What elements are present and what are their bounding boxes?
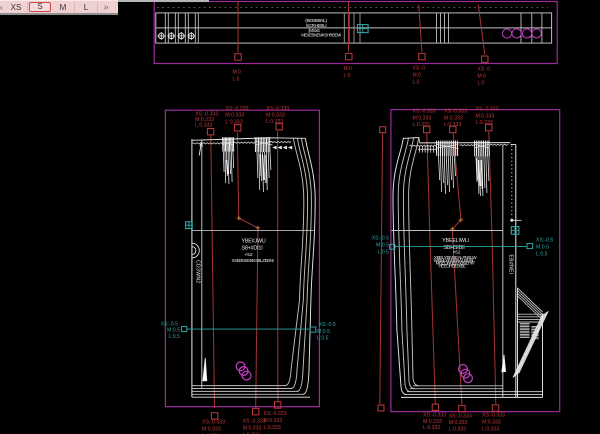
svg-text:XS:-0: XS:-0 (478, 67, 491, 73)
svg-text:M:0.333: M:0.333 (482, 420, 501, 426)
svg-text:M:0.333: M:0.333 (413, 115, 432, 121)
svg-text:M:0.333: M:0.333 (243, 425, 262, 431)
svg-text:×52: ×52 (244, 252, 252, 258)
svg-text:YBEELIWLI: YBEELIWLI (442, 238, 469, 244)
svg-text:XS:-0.333: XS:-0.333 (423, 413, 446, 419)
svg-text:M:0: M:0 (344, 66, 353, 72)
svg-text:L:0.333: L:0.333 (225, 119, 242, 125)
svg-text:L:0.5: L:0.5 (317, 335, 329, 341)
svg-text:XS:-0.333: XS:-0.333 (243, 418, 266, 424)
svg-text:MEXEBNEMKSHRBEMI: MEXEBNEMKSHRBEMI (301, 33, 341, 38)
svg-text:M:0.333: M:0.333 (264, 418, 283, 424)
svg-text:XS:-0.333: XS:-0.333 (444, 109, 467, 115)
svg-text:. .... .... . ...: . .... .... . ... (517, 32, 539, 37)
svg-text:M:0.333: M:0.333 (476, 113, 495, 119)
svg-text:L:0.333: L:0.333 (413, 122, 430, 128)
svg-text:M:0.5: M:0.5 (317, 329, 330, 335)
svg-text:XS:-0.333: XS:-0.333 (202, 420, 225, 426)
svg-text:M:0.333: M:0.333 (449, 420, 468, 426)
svg-text:XSEBNSEBKSBLZEBNI: XSEBNSEBKSBLZEBNI (232, 258, 274, 263)
svg-text:L:0.333: L:0.333 (449, 427, 466, 433)
svg-text:M:0.333: M:0.333 (225, 113, 244, 119)
svg-text:×52: ×52 (453, 249, 461, 254)
svg-text:S8+#DI1I: S8+#DI1I (241, 246, 262, 252)
svg-text:L:0: L:0 (413, 80, 420, 86)
svg-text:M:0.333: M:0.333 (444, 115, 463, 121)
svg-text:M:0.333: M:0.333 (202, 427, 221, 433)
svg-text:XS:-0.5: XS:-0.5 (372, 235, 389, 241)
svg-text:L:0: L:0 (344, 73, 351, 79)
svg-text:L:0.5: L:0.5 (168, 334, 180, 340)
svg-text:L:0: L:0 (478, 81, 485, 87)
svg-text:L:0.5: L:0.5 (536, 251, 548, 257)
svg-text:L:0.333: L:0.333 (195, 123, 212, 129)
svg-text:XS:-0.333: XS:-0.333 (413, 109, 436, 115)
svg-text:M:0.333: M:0.333 (423, 419, 442, 425)
svg-text:XS:-0.5: XS:-0.5 (161, 321, 178, 327)
svg-text:XS:-0.333: XS:-0.333 (476, 107, 499, 113)
svg-text:HEEOHBEIXBE: HEEOHBEIXBE (438, 263, 466, 268)
svg-text:XS:-0.333: XS:-0.333 (225, 106, 248, 112)
svg-text:L:0.333: L:0.333 (476, 120, 493, 126)
svg-text:L:0.333: L:0.333 (423, 425, 440, 431)
svg-text:L:0.333: L:0.333 (264, 425, 281, 431)
svg-text:XS:-0.333: XS:-0.333 (264, 411, 287, 417)
svg-text:L:0.333: L:0.333 (444, 122, 461, 128)
svg-text:XS:-0.5: XS:-0.5 (319, 322, 336, 328)
svg-text:M:0.5: M:0.5 (376, 242, 389, 248)
svg-text:M:0.5: M:0.5 (536, 244, 549, 250)
svg-text:XS:-0.333: XS:-0.333 (482, 413, 505, 419)
svg-text:CD3WN2: CD3WN2 (195, 260, 201, 284)
svg-text:XS:-0.333: XS:-0.333 (449, 414, 472, 420)
svg-text:L:0.333: L:0.333 (482, 427, 499, 433)
svg-text:YBE#JWU: YBE#JWU (241, 239, 265, 245)
svg-text:L:0.333: L:0.333 (266, 119, 283, 125)
svg-text:XS:-0.5: XS:-0.5 (536, 237, 553, 243)
svg-text:XS:-0: XS:-0 (413, 66, 426, 72)
svg-text:XS:-0.333: XS:-0.333 (266, 106, 289, 112)
svg-text:M:0: M:0 (413, 73, 422, 79)
svg-text:M:0.5: M:0.5 (167, 328, 180, 334)
svg-text:L:0: L:0 (233, 77, 240, 83)
svg-text:M:0: M:0 (478, 74, 487, 80)
svg-text:M:0.333: M:0.333 (266, 113, 285, 119)
svg-text:M:0: M:0 (233, 70, 242, 76)
svg-text:EB#NEI: EB#NEI (507, 255, 513, 275)
svg-text:L:0.5: L:0.5 (377, 249, 389, 255)
